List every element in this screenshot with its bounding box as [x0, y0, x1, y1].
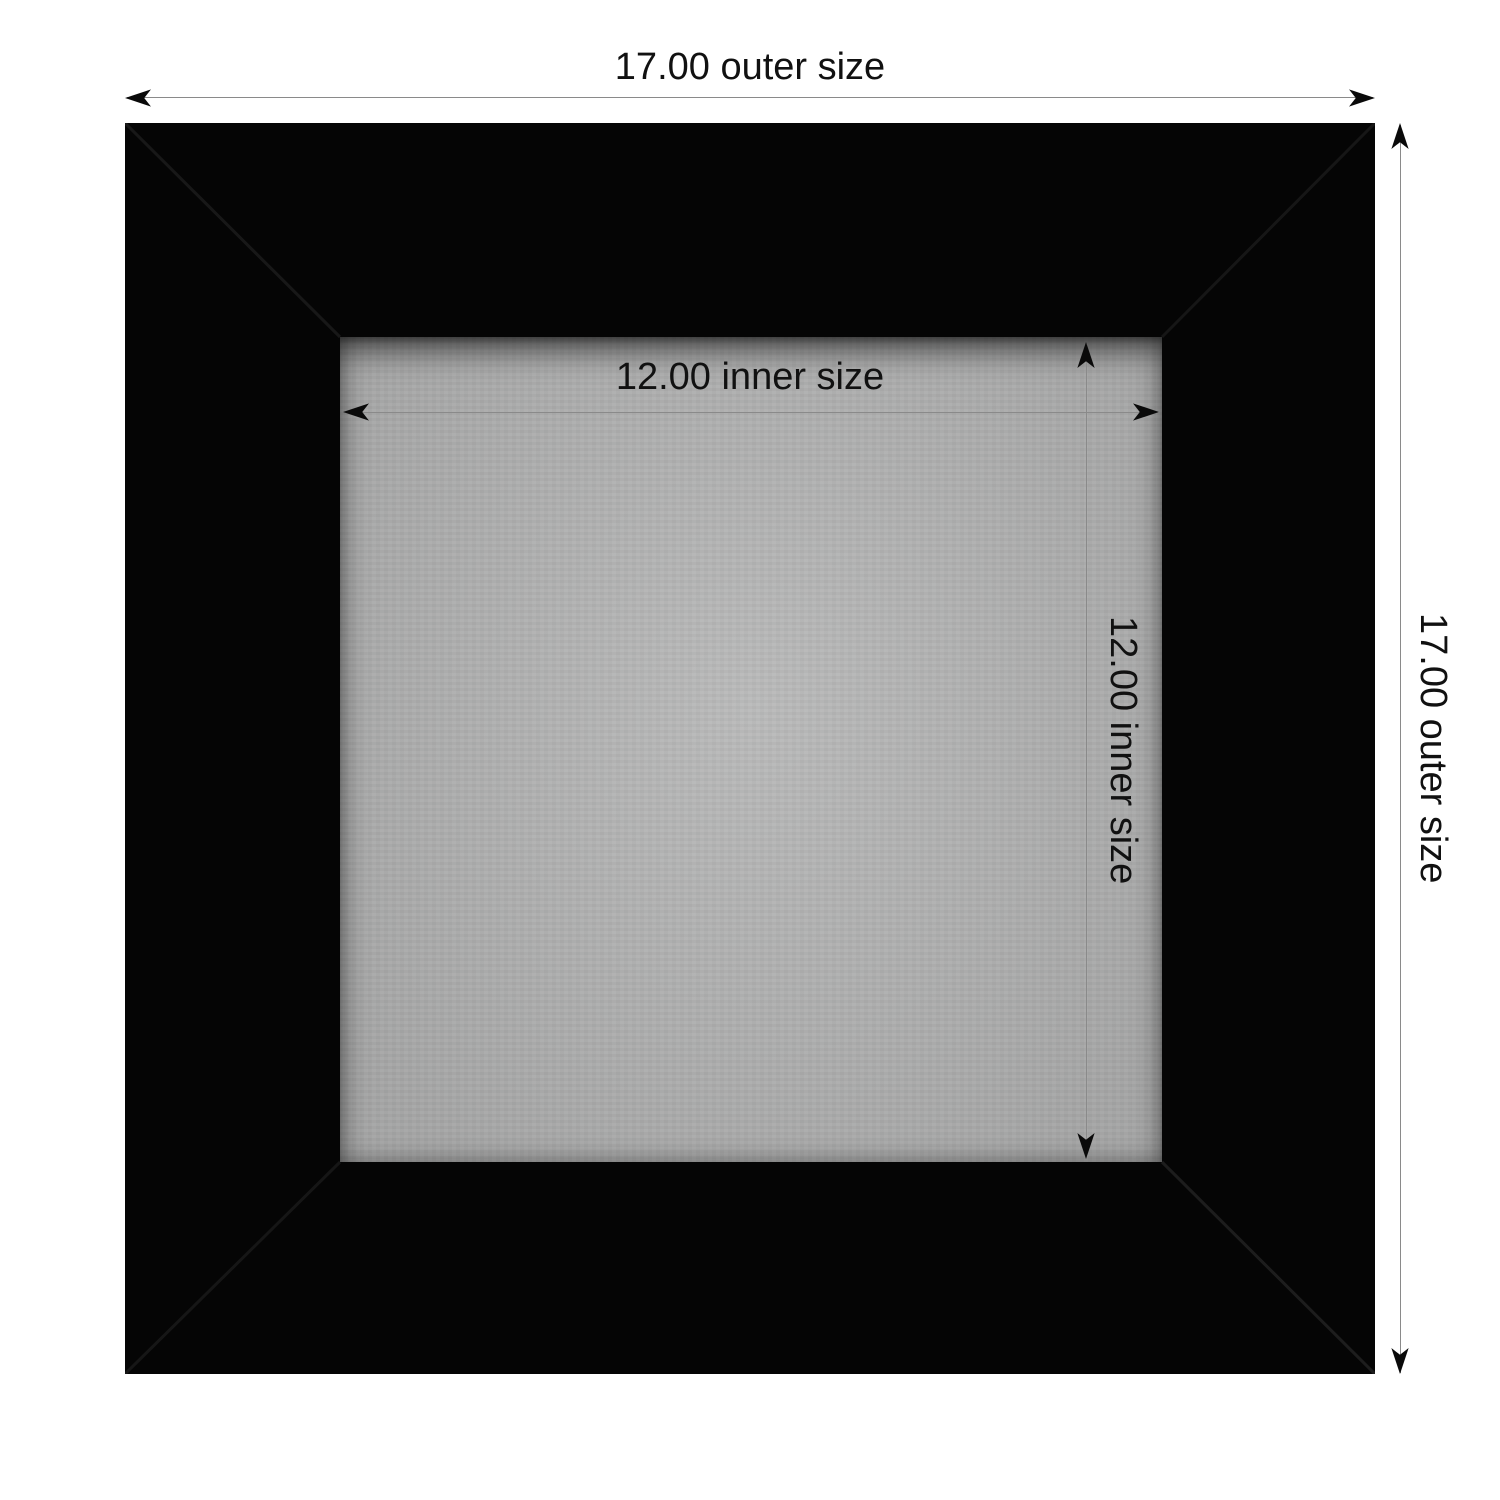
miter-line-top-right [1162, 123, 1375, 337]
outer-width-dimension-line [127, 97, 1373, 98]
picture-frame [125, 123, 1375, 1374]
miter-line-top-left [125, 123, 340, 337]
frame-inner-mat [340, 337, 1162, 1162]
arrowhead-right-icon [1349, 89, 1375, 107]
frame-dimension-diagram: 17.00 outer size 17.00 outer size 12.00 … [0, 0, 1500, 1500]
arrowhead-left-icon [125, 89, 151, 107]
outer-height-dimension-line [1400, 125, 1401, 1373]
miter-line-bottom-left [125, 1162, 340, 1374]
miter-line-bottom-right [1162, 1162, 1375, 1374]
inner-height-label: 12.00 inner size [1094, 340, 1150, 1160]
inner-height-dimension-line [1086, 344, 1087, 1159]
inner-width-label: 12.00 inner size [340, 356, 1160, 400]
inner-width-dimension-line [345, 412, 1159, 413]
outer-width-label: 17.00 outer size [125, 46, 1375, 90]
outer-height-label: 17.00 outer size [1404, 123, 1460, 1373]
